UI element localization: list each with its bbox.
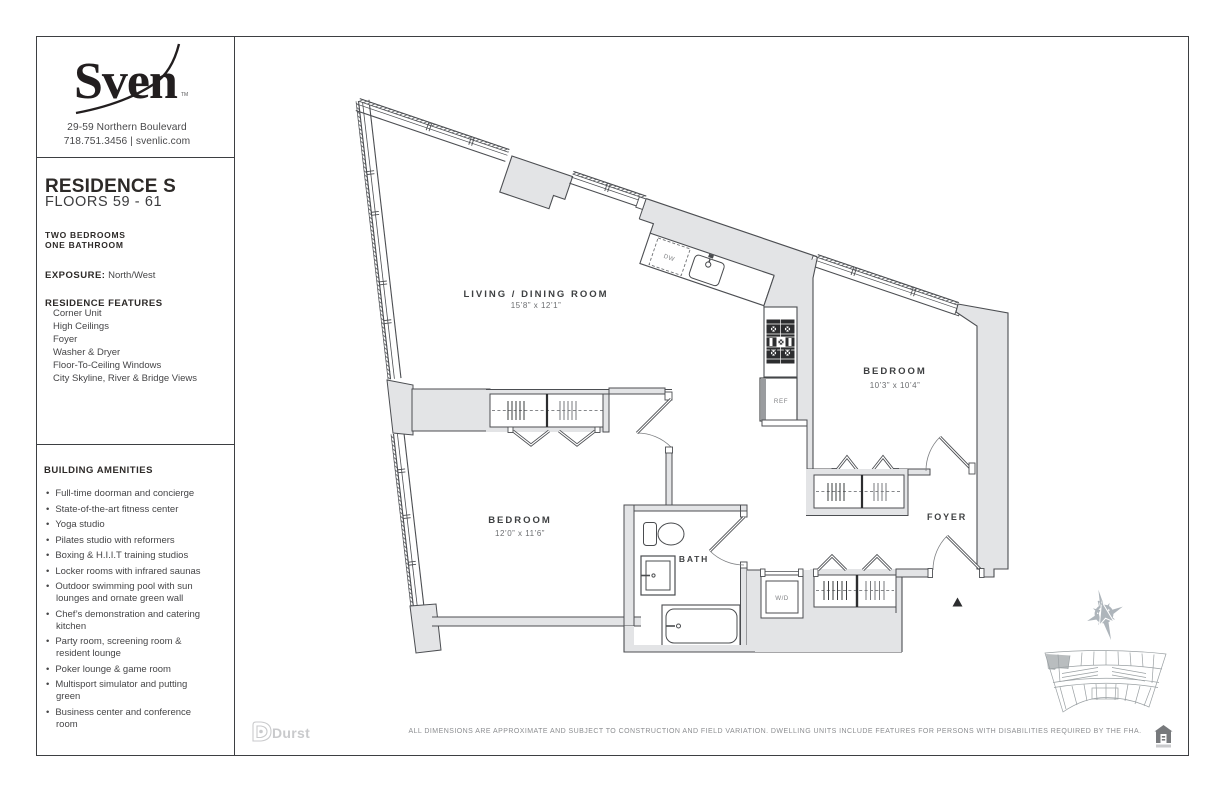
svg-text:W/D: W/D (775, 595, 789, 602)
svg-text:BEDROOM: BEDROOM (863, 366, 927, 377)
svg-text:REF: REF (774, 398, 788, 405)
svg-text:FOYER: FOYER (927, 512, 967, 522)
svg-text:BEDROOM: BEDROOM (488, 515, 552, 526)
svg-text:15’8” x 12’1”: 15’8” x 12’1” (511, 301, 562, 310)
svg-text:BATH: BATH (679, 554, 709, 564)
svg-text:10’3” x 10’4”: 10’3” x 10’4” (870, 381, 921, 390)
svg-text:12’0” x 11’6”: 12’0” x 11’6” (495, 529, 545, 538)
svg-text:N: N (1097, 598, 1104, 608)
svg-text:LIVING / DINING ROOM: LIVING / DINING ROOM (463, 289, 608, 300)
